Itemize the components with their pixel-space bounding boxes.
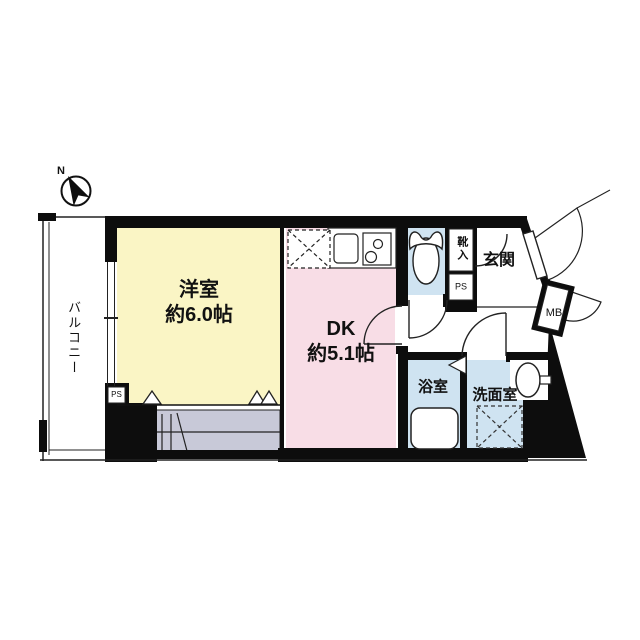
western-room-name: 洋室 [165,278,233,303]
refrigerator-space [288,230,330,268]
wall-bottom-left-block [105,403,157,462]
meter-box-label: MB [546,307,563,321]
wash-basin [516,363,540,397]
wall-partition-room-dk [280,228,284,450]
dk-label: DK 約5.1帖 [307,317,375,367]
balcony-label: バルコニー [65,301,81,376]
entrance-label: 玄関 [483,251,515,271]
wall-bath-top [398,352,464,360]
wall-under-storage [153,450,280,459]
western-room-size: 約6.0帖 [165,303,233,328]
stove-burner-2 [366,252,377,263]
washroom-label: 洗面室 [472,387,517,406]
dk-door-gap [395,306,409,346]
washroom-door-arc [462,313,506,356]
toilet-door-arc [409,300,447,338]
kitchen-sink [334,234,358,263]
shoe-cabinet-label: 靴入 [454,236,468,262]
balcony-tick-left [39,420,47,452]
wall-left-upper [105,216,117,262]
western-room-label: 洋室 約6.0帖 [165,278,233,328]
balcony-tick-top [38,213,56,221]
bathtub [411,408,458,449]
front-door-swing-line [577,190,610,208]
dk-size: 約5.1帖 [307,342,375,367]
basin-faucet [540,376,551,384]
ps-room-label: PS [111,390,122,400]
wall-dk-hall-upper [396,216,408,308]
floorplan-canvas: バルコニー 洋室 約6.0帖 DK 約5.1帖 玄関 浴室 洗面室 靴入 PS … [0,0,640,640]
dk-name: DK [307,317,375,342]
wall-bath-left [398,350,408,455]
north-label: N [57,165,65,179]
bathroom-label: 浴室 [418,379,448,398]
stove-burner-1 [374,240,383,249]
ps-hall-label: PS [455,281,467,292]
